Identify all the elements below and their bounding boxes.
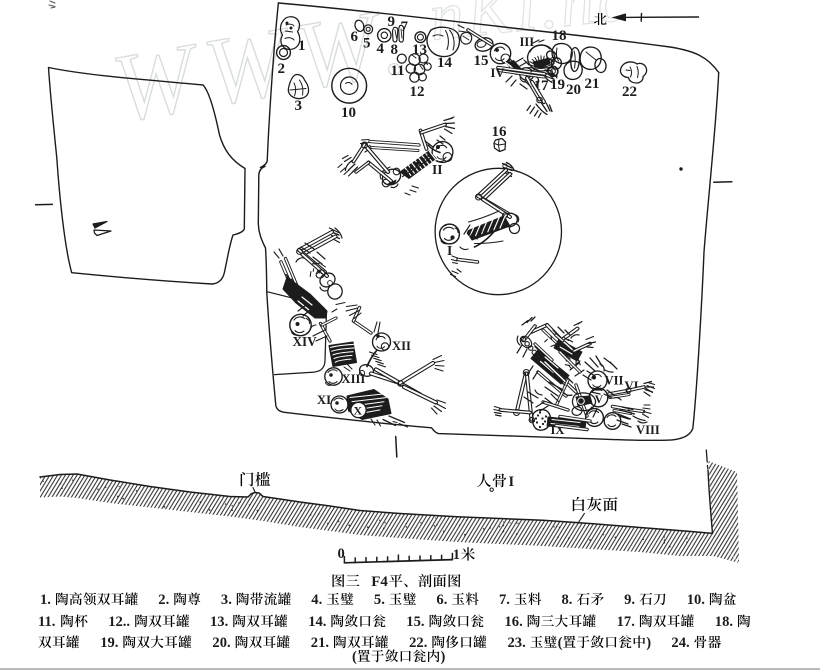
svg-text:X: X: [354, 404, 363, 418]
svg-text:): ): [646, 635, 651, 651]
svg-text:I: I: [509, 474, 515, 490]
svg-text:20: 20: [566, 82, 581, 98]
svg-text:IV: IV: [491, 66, 505, 80]
svg-text:III: III: [520, 35, 535, 49]
svg-text:11: 11: [391, 63, 405, 79]
svg-text:6.: 6.: [436, 592, 447, 608]
svg-text:15: 15: [474, 53, 489, 69]
svg-text:1: 1: [298, 38, 306, 54]
svg-text:VIII: VIII: [636, 423, 660, 437]
svg-text:18.: 18.: [715, 614, 733, 630]
svg-text:11.: 11.: [38, 614, 55, 630]
svg-text:14: 14: [437, 55, 453, 71]
svg-text:16: 16: [492, 124, 508, 140]
svg-text:6: 6: [351, 29, 359, 45]
svg-text:V: V: [595, 394, 604, 406]
svg-text:5.: 5.: [374, 592, 385, 608]
svg-text:23.: 23.: [508, 635, 526, 651]
svg-text:): ): [441, 649, 446, 665]
svg-text:21.: 21.: [311, 635, 329, 651]
svg-text:22.: 22.: [409, 635, 427, 651]
svg-text:17.: 17.: [617, 614, 635, 630]
svg-text:14.: 14.: [308, 614, 326, 630]
svg-text:2: 2: [278, 61, 286, 77]
svg-text:4: 4: [377, 41, 385, 57]
svg-text:4.: 4.: [311, 592, 322, 608]
svg-text:13.: 13.: [210, 614, 228, 630]
svg-text:7.: 7.: [499, 592, 510, 608]
svg-text:VII: VII: [605, 374, 624, 388]
svg-text:19: 19: [550, 77, 565, 93]
svg-text:2.: 2.: [158, 592, 169, 608]
svg-text:22: 22: [622, 84, 637, 100]
svg-text:(: (: [352, 649, 357, 665]
svg-text:9.: 9.: [624, 592, 635, 608]
svg-text:10.: 10.: [687, 592, 705, 608]
svg-text:15.: 15.: [406, 614, 424, 630]
svg-text:F4: F4: [371, 574, 388, 590]
svg-text:8: 8: [391, 42, 399, 58]
svg-text:1: 1: [453, 547, 460, 563]
svg-text:XII: XII: [392, 339, 411, 353]
svg-text:21: 21: [585, 76, 600, 92]
svg-text:7: 7: [401, 19, 409, 35]
svg-text:II: II: [432, 162, 443, 177]
svg-text:19.: 19.: [100, 635, 118, 651]
svg-text:10: 10: [341, 105, 356, 121]
svg-text:XI: XI: [317, 393, 331, 407]
svg-text:I: I: [447, 243, 452, 258]
svg-text:20.: 20.: [212, 635, 230, 651]
svg-text:16.: 16.: [505, 614, 523, 630]
svg-text:12..: 12..: [108, 614, 130, 630]
svg-text:XIII: XIII: [342, 372, 366, 386]
svg-text:(: (: [558, 635, 563, 651]
svg-text:3.: 3.: [221, 592, 232, 608]
svg-text:5: 5: [363, 36, 371, 52]
svg-text:3: 3: [295, 98, 303, 114]
svg-text:24.: 24.: [671, 635, 689, 651]
svg-text:8.: 8.: [562, 592, 573, 608]
svg-text:1.: 1.: [40, 592, 51, 608]
svg-text:WWW.: WWW.: [105, 0, 425, 143]
svg-text:12: 12: [410, 84, 425, 100]
svg-text:18: 18: [552, 28, 567, 44]
